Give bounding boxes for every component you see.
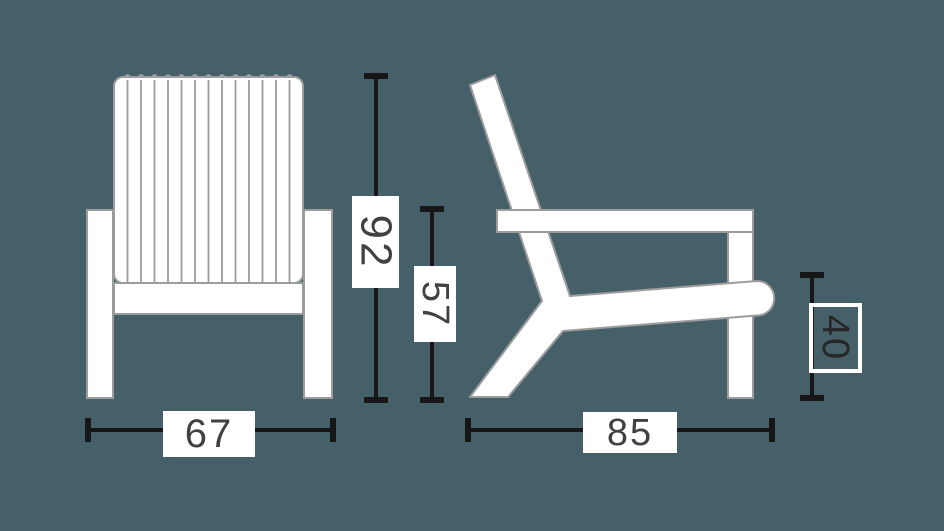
overall-width-value: 67 xyxy=(185,414,234,454)
seat-height-value: 40 xyxy=(817,315,855,361)
dimension-label-overall-width: 67 xyxy=(163,411,255,457)
dimension-label-overall-depth: 85 xyxy=(583,412,677,453)
front-seat-rail xyxy=(114,283,303,314)
dimension-label-seat-height: 40 xyxy=(809,303,862,373)
dimension-label-overall-height: 92 xyxy=(352,196,399,288)
side-view xyxy=(470,75,774,398)
front-left-leg-post xyxy=(87,210,113,398)
diagram-drawing xyxy=(0,0,944,531)
overall-depth-value: 85 xyxy=(607,414,653,452)
chair-dimension-diagram: 92 57 67 85 40 xyxy=(0,0,944,531)
overall-height-value: 92 xyxy=(354,215,398,270)
side-armrest xyxy=(497,210,753,232)
armrest-height-value: 57 xyxy=(416,281,454,327)
dimension-label-armrest-height: 57 xyxy=(414,266,456,342)
front-right-leg-post xyxy=(304,210,332,398)
front-view xyxy=(87,75,332,398)
